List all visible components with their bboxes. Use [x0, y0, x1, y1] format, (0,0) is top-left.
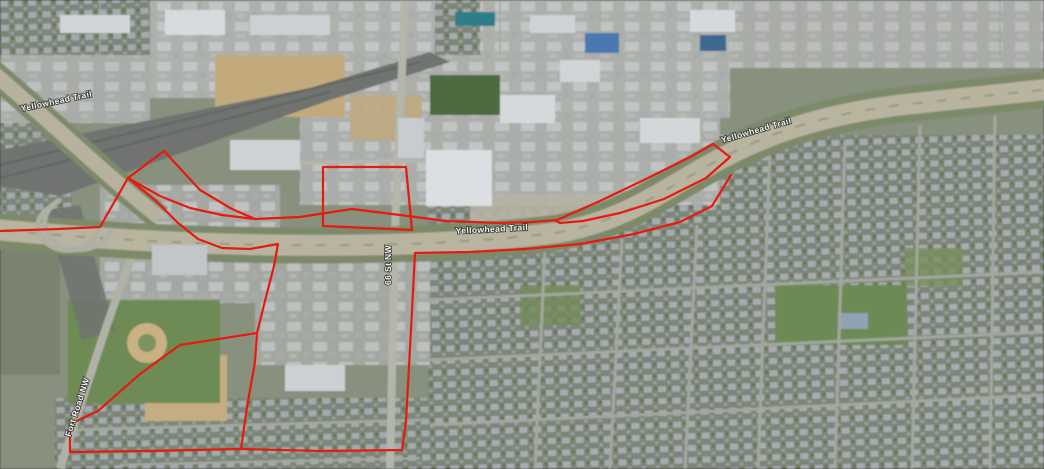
satellite-imagery: Yellowhead TrailYellowhead TrailYellowhe… [0, 0, 1044, 469]
blue-roof-building [585, 33, 619, 53]
teal-roof-building [455, 12, 495, 26]
blue-roof-building [700, 35, 726, 51]
satellite-map-view[interactable]: Yellowhead TrailYellowhead TrailYellowhe… [0, 0, 1044, 469]
road-label-street-vertical: 66 St NW [383, 244, 393, 285]
